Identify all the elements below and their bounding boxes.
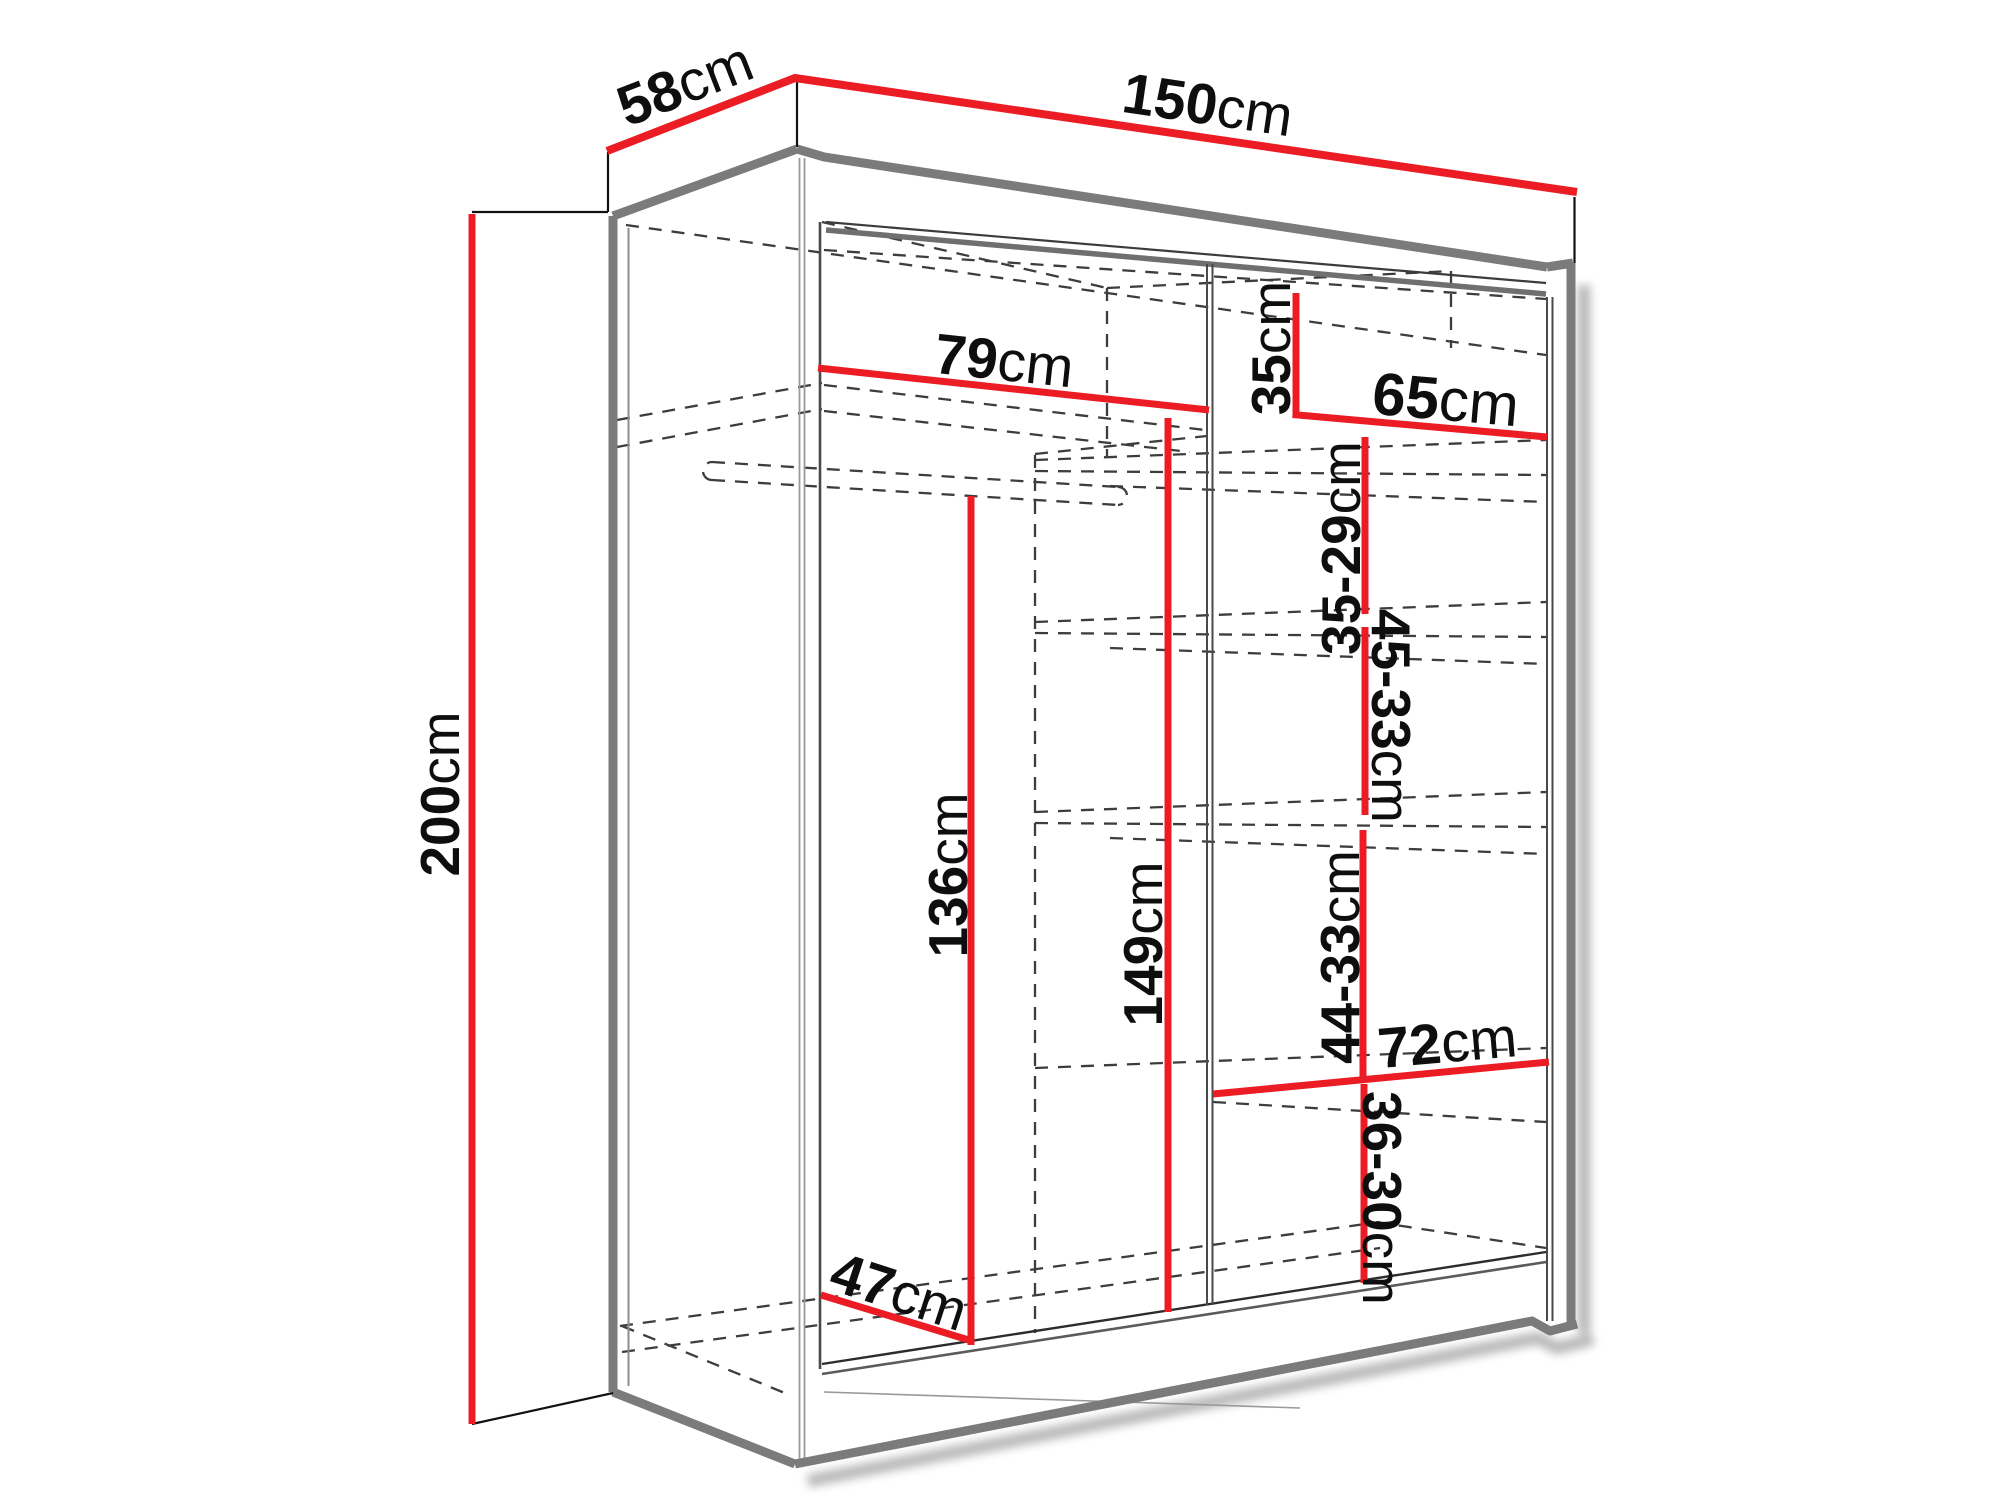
svg-text:149cm: 149cm [1112, 861, 1174, 1026]
svg-text:36-30cm: 36-30cm [1351, 1091, 1413, 1305]
svg-text:44-33cm: 44-33cm [1309, 850, 1371, 1064]
svg-text:136cm: 136cm [917, 792, 979, 957]
svg-text:200cm: 200cm [409, 711, 471, 876]
svg-text:45-33cm: 45-33cm [1360, 609, 1422, 823]
svg-text:72cm: 72cm [1375, 1005, 1519, 1081]
svg-text:35cm: 35cm [1240, 281, 1302, 416]
svg-text:65cm: 65cm [1370, 360, 1522, 440]
